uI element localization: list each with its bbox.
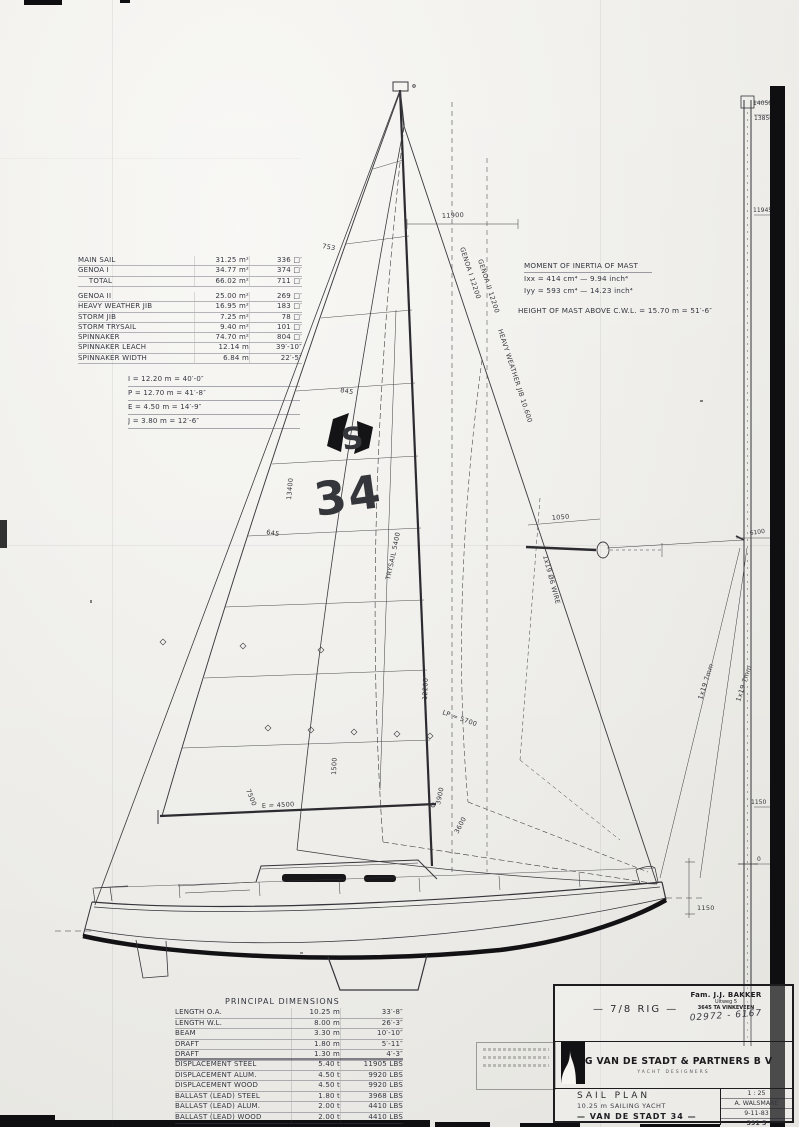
sail-area-metric: 66.02 m² <box>194 277 249 286</box>
fold-crease <box>0 158 300 159</box>
weight-imperial: 3968 LBS <box>340 1092 403 1102</box>
dim-hw-jib: HEAVY WEATHER JIB 10.600 <box>496 328 534 424</box>
sail-area-imperial: 336 □′ <box>249 256 302 265</box>
dim-3600: 3600 <box>453 816 468 835</box>
sail-area-metric: 7.25 m² <box>194 313 249 322</box>
dimension-metric: 10.25 m <box>291 1008 340 1018</box>
table-row: STORM JIB7.25 m²78 □′ <box>78 313 302 323</box>
draughtsman: A. WALSMARE <box>721 1099 792 1109</box>
sail-area-metric: 9.40 m² <box>194 323 249 332</box>
weight-label: DISPLACEMENT ALUM. <box>175 1071 291 1081</box>
fold-crease <box>600 0 601 1127</box>
drawing-date: 9-11-83 <box>721 1109 792 1119</box>
weight-row: DISPLACEMENT WOOD4.50 t9920 LBS <box>175 1081 403 1092</box>
weight-imperial: 11905 LBS <box>340 1060 403 1070</box>
weight-row: BALLAST (LEAD) WOOD2.00 t4410 LBS <box>175 1113 403 1124</box>
dimension-imperial: 26′-3″ <box>340 1019 403 1029</box>
sail-area-imperial: 183 □′ <box>249 302 302 311</box>
title-block: — 7/8 RIG — Fam. J.J. BAKKER Uitweg 5 36… <box>553 984 794 1123</box>
profile-label-11945: 11945 <box>753 207 772 214</box>
profile-label-6100: 6100 <box>749 528 765 537</box>
dim-spreader-1050: 1050 <box>551 512 569 522</box>
dimension-label: DRAFT <box>175 1040 291 1050</box>
sail-area-metric: 34.77 m² <box>194 266 249 275</box>
sail-name: SPINNAKER WIDTH <box>78 354 194 363</box>
storm-jib <box>520 498 540 760</box>
rig-lines <box>95 82 747 905</box>
inertia-block: MOMENT OF INERTIA OF MAST Ixx = 414 cm⁴ … <box>524 260 754 297</box>
dimension-row: BEAM3.30 m10′-10″ <box>175 1029 403 1040</box>
sail-area-metric: 74.70 m² <box>194 333 249 342</box>
bow-dimension-line <box>685 858 695 918</box>
sail-area-imperial: 78 □′ <box>249 313 302 322</box>
dim-e-4500: E = 4500 <box>262 800 295 810</box>
rig-dim-text: J = 3.80 m = 12′-6″ <box>128 415 300 428</box>
document-title: SAIL PLAN <box>577 1091 720 1101</box>
document-titles: SAIL PLAN 10.25 m SAILING YACHT — VAN DE… <box>555 1089 720 1125</box>
sail-name: SPINNAKER LEACH <box>78 343 194 352</box>
sail-area-metric: 25.00 m² <box>194 292 249 301</box>
dim-753: 753 <box>322 242 336 252</box>
dimension-label: LENGTH W.L. <box>175 1019 291 1029</box>
rig-dim-row: J = 3.80 m = 12′-6″ <box>128 415 300 429</box>
sail-name: HEAVY WEATHER JIB <box>78 302 194 311</box>
sail-area-metric: 12.14 m <box>194 343 249 352</box>
sail-area-table-main: MAIN SAIL31.25 m²336 □′GENOA I34.77 m²37… <box>78 256 302 287</box>
weight-metric: 2.00 t <box>291 1113 340 1123</box>
mainsail-seams <box>182 160 430 748</box>
sail-name: MAIN SAIL <box>78 256 194 265</box>
dim-1500: 1500 <box>330 757 339 775</box>
blueprint-sheet: S 34 11900 GENOA I 12200 GENOA II 12200 … <box>0 0 799 1127</box>
sail-area-imperial: 101 □′ <box>249 323 302 332</box>
dimension-metric: 1.80 m <box>291 1040 340 1050</box>
dim-lp-5700: LP = 5700 <box>441 708 478 728</box>
sail-area-imperial: 39′-10″ <box>249 343 302 352</box>
mast <box>400 90 432 866</box>
lifeline <box>93 868 655 888</box>
dim-genoa1: GENOA I 12200 <box>458 246 482 300</box>
profile-label-1150: 1150 <box>751 799 766 806</box>
hull <box>55 858 706 990</box>
table-row: SPINNAKER LEACH12.14 m39′-10″ <box>78 343 302 353</box>
sail-name: TOTAL <box>78 277 194 286</box>
dimension-label: LENGTH O.A. <box>175 1008 291 1018</box>
weight-metric: 2.00 t <box>291 1102 340 1112</box>
dim-645: 645 <box>266 528 280 538</box>
sail-name: GENOA II <box>78 292 194 301</box>
dimension-row: LENGTH O.A.10.25 m33′-8″ <box>175 1008 403 1019</box>
profile-label-14050: 14050 <box>753 100 772 107</box>
boom <box>160 804 436 816</box>
inertia-iyy: Iyy = 593 cm⁴ — 14.23 inch⁴ <box>524 285 754 297</box>
company-band: E G VAN DE STADT & PARTNERS B V YACHT DE… <box>555 1041 792 1088</box>
weight-label: BALLAST (LEAD) WOOD <box>175 1113 291 1123</box>
keel <box>328 955 427 990</box>
sail-area-table-secondary: GENOA II25.00 m²269 □′HEAVY WEATHER JIB1… <box>78 292 302 364</box>
table-row: GENOA I34.77 m²374 □′ <box>78 266 302 276</box>
sail-area-metric: 6.84 m <box>194 354 249 363</box>
inertia-ixx: Ixx = 414 cm⁴ — 9.94 inch⁴ <box>524 273 754 285</box>
pushpit <box>93 886 128 902</box>
dim-7500: 7500 <box>244 788 258 807</box>
weight-imperial: 9920 LBS <box>340 1081 403 1091</box>
sail-insignia: S 34 <box>311 413 386 527</box>
weight-row: BALLAST (LEAD) STEEL1.80 t3968 LBS <box>175 1092 403 1103</box>
van-de-stadt-logo <box>558 1042 588 1084</box>
rig-dim-text: P = 12.70 m = 41′-8″ <box>128 387 300 400</box>
weight-imperial: 4410 LBS <box>340 1113 403 1123</box>
dimension-row: LENGTH W.L.8.00 m26′-3″ <box>175 1019 403 1030</box>
sail-area-imperial: 22′-5″ <box>249 354 302 363</box>
displacement-table: DISPLACEMENT STEEL5.40 t11905 LBSDISPLAC… <box>175 1058 403 1124</box>
dim-mast-12200: 12200 <box>421 678 430 700</box>
dimension-imperial: 5′-11″ <box>340 1040 403 1050</box>
principal-dimensions-title: PRINCIPAL DIMENSIONS <box>225 997 340 1006</box>
rig-dim-text: E = 4.50 m = 14′-9″ <box>128 401 300 414</box>
weight-imperial: 9920 LBS <box>340 1071 403 1081</box>
profile-height-labels: 14050 13850 11945 6100 1150 0 <box>749 100 773 863</box>
owner-stamp: Fam. J.J. BAKKER Uitweg 5 3645 TA VINKEV… <box>667 991 785 1021</box>
sail-name: GENOA I <box>78 266 194 275</box>
fold-crease <box>112 0 113 1127</box>
dimension-row: DRAFT1.80 m5′-11″ <box>175 1040 403 1051</box>
dim-13400: 13400 <box>285 477 295 500</box>
weight-label: DISPLACEMENT STEEL <box>175 1060 291 1070</box>
sail-name: SPINNAKER <box>78 333 194 342</box>
weight-metric: 5.40 t <box>291 1060 340 1070</box>
rig-dim-row: I = 12.20 m = 40′-0″ <box>128 373 300 387</box>
wire-spec-1: 1x19 7mm <box>696 662 715 700</box>
mast-height-note: HEIGHT OF MAST ABOVE C.W.L. = 15.70 m = … <box>518 306 768 315</box>
wire-spec-spreader: 1x19 Ø6 WIRE <box>541 554 562 605</box>
table-row: TOTAL66.02 m²711 □′ <box>78 277 302 287</box>
sail-plan-drawing: S 34 11900 GENOA I 12200 GENOA II 12200 … <box>0 0 799 1127</box>
hw-jib <box>462 360 482 802</box>
pulpit <box>636 866 658 884</box>
company-name: E G VAN DE STADT & PARTNERS B V <box>555 1056 792 1067</box>
table-row: HEAVY WEATHER JIB16.95 m²183 □′ <box>78 302 302 312</box>
sail-name: STORM TRYSAIL <box>78 323 194 332</box>
principal-dimensions-table: LENGTH O.A.10.25 m33′-8″LENGTH W.L.8.00 … <box>175 1008 403 1061</box>
profile-label-0: 0 <box>757 856 761 863</box>
weight-metric: 1.80 t <box>291 1092 340 1102</box>
rig-type-label: — 7/8 RIG — <box>593 1004 678 1015</box>
weight-metric: 4.50 t <box>291 1081 340 1091</box>
document-name: — VAN DE STADT 34 — <box>577 1112 720 1121</box>
table-row: SPINNAKER WIDTH6.84 m22′-5″ <box>78 354 302 364</box>
sail-area-metric: 16.95 m² <box>194 302 249 311</box>
document-band: SAIL PLAN 10.25 m SAILING YACHT — VAN DE… <box>555 1088 792 1125</box>
dim-trysail: TRYSAIL 5400 <box>384 531 402 581</box>
stamp-name: Fam. J.J. BAKKER <box>667 991 785 999</box>
forestay <box>404 126 657 884</box>
rig-dimensions-box: I = 12.20 m = 40′-0″P = 12.70 m = 41′-8″… <box>128 373 300 429</box>
weight-label: BALLAST (LEAD) ALUM. <box>175 1102 291 1112</box>
dimension-label: BEAM <box>175 1029 291 1039</box>
fine-print-stamp <box>476 1042 556 1090</box>
document-meta: 1 : 25 A. WALSMARE 9-11-83 391 5 <box>720 1089 792 1125</box>
weight-metric: 4.50 t <box>291 1071 340 1081</box>
sail-area-imperial: 804 □′ <box>249 333 302 342</box>
masthead-fitting <box>393 82 408 91</box>
sail-area-metric: 31.25 m² <box>194 256 249 265</box>
rig-dim-text: I = 12.20 m = 40′-0″ <box>128 373 300 386</box>
weight-imperial: 4410 LBS <box>340 1102 403 1112</box>
rig-dim-row: P = 12.70 m = 41′-8″ <box>128 387 300 401</box>
cabin-window <box>364 875 396 882</box>
table-row: GENOA II25.00 m²269 □′ <box>78 292 302 302</box>
underbody <box>83 900 666 958</box>
dimension-imperial: 33′-8″ <box>340 1008 403 1018</box>
sail-area-imperial: 269 □′ <box>249 292 302 301</box>
rig-dim-row: E = 4.50 m = 14′-9″ <box>128 401 300 415</box>
document-subtitle: 10.25 m SAILING YACHT <box>577 1102 720 1110</box>
drawing-scale: 1 : 25 <box>721 1089 792 1099</box>
table-row: MAIN SAIL31.25 m²336 □′ <box>78 256 302 266</box>
dimension-imperial: 10′-10″ <box>340 1029 403 1039</box>
dim-845: 845 <box>340 386 354 396</box>
table-row: SPINNAKER74.70 m²804 □′ <box>78 333 302 343</box>
weight-row: BALLAST (LEAD) ALUM.2.00 t4410 LBS <box>175 1102 403 1113</box>
dim-11900: 11900 <box>442 211 465 220</box>
drawing-number: 391 5 <box>721 1119 792 1127</box>
spreader <box>526 547 596 550</box>
sail-name: STORM JIB <box>78 313 194 322</box>
sail-area-imperial: 711 □′ <box>249 277 302 286</box>
company-subtitle: YACHT DESIGNERS <box>555 1070 792 1075</box>
dimension-metric: 8.00 m <box>291 1019 340 1029</box>
sail-number: 34 <box>311 464 386 527</box>
weight-label: BALLAST (LEAD) STEEL <box>175 1092 291 1102</box>
seam-diamonds <box>160 639 433 739</box>
fold-crease <box>0 545 770 546</box>
weight-row: DISPLACEMENT STEEL5.40 t11905 LBS <box>175 1060 403 1071</box>
mast-profile <box>736 96 770 1046</box>
sail-area-imperial: 374 □′ <box>249 266 302 275</box>
weight-row: DISPLACEMENT ALUM.4.50 t9920 LBS <box>175 1071 403 1082</box>
dim-3900: 3900 <box>434 786 446 805</box>
inertia-title: MOMENT OF INERTIA OF MAST <box>524 260 652 273</box>
dim-genoa2: GENOA II 12200 <box>476 258 501 314</box>
weight-label: DISPLACEMENT WOOD <box>175 1081 291 1091</box>
table-row: STORM TRYSAIL9.40 m²101 □′ <box>78 323 302 333</box>
dimension-metric: 3.30 m <box>291 1029 340 1039</box>
dim-bow-1150: 1150 <box>697 904 715 912</box>
